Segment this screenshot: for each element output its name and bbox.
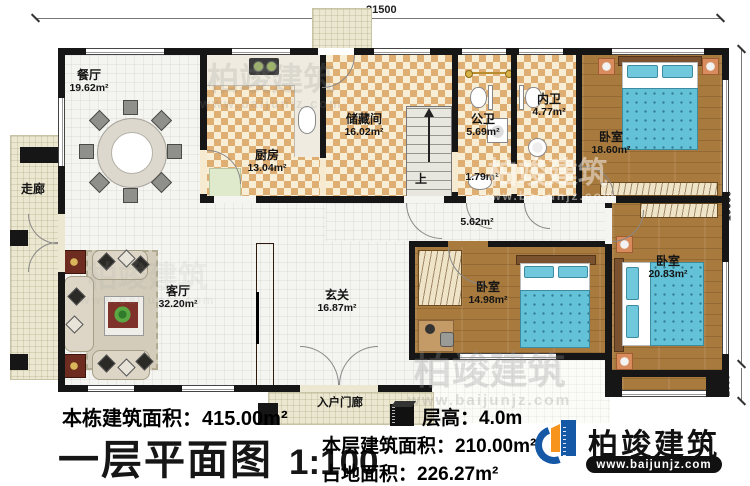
room-label-dining: 餐厅 19.62m² (52, 68, 126, 95)
nightstand-icon (702, 58, 719, 75)
area-label-basin-nook: 1.79m² (456, 171, 508, 184)
room-label-bedroom-right: 卧室 20.83m² (628, 254, 708, 281)
stairs-arrowhead (424, 108, 434, 117)
door-opening (318, 48, 354, 55)
window (374, 48, 430, 55)
pillow-icon (524, 266, 554, 278)
door-opening (200, 150, 207, 194)
room-label-inner-bath: 内卫 4.77m² (520, 92, 578, 119)
window (88, 385, 134, 392)
stat-floor-height: 层高：4.0m (422, 403, 522, 430)
sofa-icon (64, 276, 94, 352)
door-opening (511, 164, 517, 194)
door-opening (404, 196, 444, 203)
stairs-arrow (428, 116, 430, 162)
room-label-porch: 入户门廊 (296, 397, 384, 411)
wall-bedroom-mid-top (409, 241, 605, 247)
wardrobe-icon (640, 203, 718, 218)
wall-segment (20, 147, 58, 163)
wall-bay-side (605, 377, 622, 397)
plant-icon (114, 306, 131, 323)
logo-building-orange (551, 424, 560, 452)
pillow-icon (662, 65, 693, 78)
dining-chair-icon (79, 144, 94, 159)
wardrobe-icon (600, 182, 718, 196)
room-label-foyer: 玄关 16.87m² (302, 288, 372, 315)
dining-chair-icon (123, 188, 138, 203)
towel-bar-knob (465, 70, 473, 78)
room-label-bedroom-top: 卧室 18.60m² (574, 130, 648, 157)
tv-icon (256, 292, 259, 344)
brand-url: www.baijunjz.com (596, 459, 711, 471)
dining-table-top (111, 132, 153, 174)
window (519, 48, 563, 55)
logo-building-blue (561, 420, 576, 456)
room-label-corridor: 走廊 (10, 182, 56, 196)
window (232, 48, 290, 55)
pillow-icon (558, 266, 588, 278)
floor-inner-bath (517, 55, 576, 196)
toilet-icon (470, 87, 487, 108)
stat-floor-area: 本层建筑面积：210.00m² (322, 431, 536, 458)
floor-back-porch (312, 8, 372, 50)
toilet-tank (488, 85, 493, 110)
stat-footprint: 占地面积：226.27m² (322, 459, 498, 486)
room-label-bedroom-mid: 卧室 14.98m² (448, 280, 528, 307)
window (722, 262, 729, 354)
window (460, 353, 556, 360)
room-label-kitchen: 厨房 13.04m² (232, 148, 302, 175)
door-opening (466, 196, 494, 203)
door-opening (582, 196, 616, 203)
stairs-up-label: 上 (408, 172, 434, 186)
window (462, 48, 506, 55)
window (182, 385, 234, 392)
stove-burner (253, 61, 264, 72)
room-label-living: 客厅 32.20m² (142, 284, 214, 311)
brand-logo-icon (534, 418, 586, 472)
window (622, 390, 706, 397)
dimension-line-right-small (741, 368, 742, 402)
wall-bay-side (706, 377, 729, 397)
cube-dots (392, 407, 395, 423)
side-table-icon (62, 354, 86, 378)
dimension-line-top (35, 18, 721, 19)
bed-blanket (520, 290, 590, 348)
brand-url-badge: www.baijunjz.com (586, 456, 722, 473)
door-opening (300, 385, 378, 392)
room-label-storage: 储藏间 16.02m² (324, 112, 404, 139)
wall-bedroom-mid-left (409, 241, 415, 360)
desk-lamp-icon (425, 324, 435, 334)
washbasin-icon (528, 138, 547, 157)
wall-segment (10, 230, 28, 246)
nightstand-icon (598, 58, 615, 75)
desk-chair-icon (440, 332, 454, 347)
window (58, 98, 65, 166)
dimension-line-right (741, 50, 742, 365)
wall-hall-top (200, 196, 728, 203)
cube-marker-icon (390, 401, 414, 426)
nightstand-icon (616, 353, 633, 370)
window (86, 48, 164, 55)
floor-bedroom-right-bay (622, 377, 706, 390)
door-opening (524, 196, 552, 203)
window (612, 48, 704, 55)
wall-segment (10, 354, 28, 370)
kitchen-sink-icon (298, 106, 316, 134)
area-label-hallway: 5.62m² (446, 216, 508, 229)
door-opening (58, 214, 65, 272)
floor-plan-canvas: 21500 10000 1000 (0, 0, 750, 486)
wall-bath-bedroom (576, 55, 582, 203)
door-opening (320, 158, 326, 196)
dining-chair-icon (123, 100, 138, 115)
page-title: 一层平面图 (58, 426, 273, 486)
dining-chair-icon (167, 144, 182, 159)
pillow-icon (626, 305, 639, 338)
side-table-icon (62, 250, 86, 274)
door-opening (605, 208, 612, 244)
wall-bedroom-right-bottom (605, 370, 729, 377)
door-opening (214, 196, 256, 203)
stove-burner (266, 61, 277, 72)
pillow-icon (627, 65, 658, 78)
towel-bar (468, 72, 508, 74)
room-label-public-bath: 公卫 5.69m² (455, 112, 511, 139)
window (722, 80, 729, 192)
